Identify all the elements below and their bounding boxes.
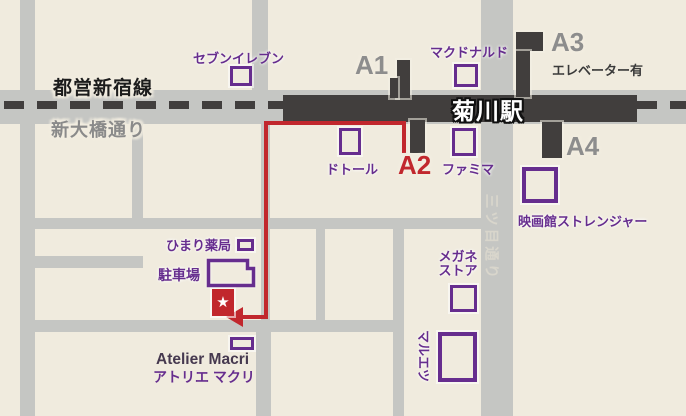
exit-a2-stub [410, 120, 425, 153]
destination-star-icon: ★ [212, 289, 234, 316]
exit-a3-stub-arm [516, 32, 543, 51]
exit-a3-stub [516, 51, 530, 97]
mcdonalds-marker [454, 64, 478, 87]
megane-store-marker [450, 285, 477, 312]
doutor-marker [339, 128, 361, 155]
exit-a1-stub-foot [390, 78, 398, 98]
maruetsu-label: マルエツ [420, 330, 434, 382]
exit-a3-label: A3 [551, 27, 584, 58]
toei-shinjuku-line-label: 都営新宿線 [53, 73, 153, 100]
parking-marker [203, 256, 257, 289]
street-horizontal-3 [20, 320, 404, 332]
exit-a1-label: A1 [355, 50, 388, 81]
exit-a1-stub [397, 60, 410, 98]
destination-name-ja: アトリエ マクリ [153, 367, 255, 387]
cinema-label: 映画館ストレンジャー [518, 211, 647, 230]
cinema-marker [522, 167, 558, 203]
atelier-macri-marker [230, 337, 254, 350]
famima-label: ファミマ [442, 159, 494, 178]
parking-label: 駐車場 [158, 265, 200, 285]
street-vertical-lower [256, 320, 271, 416]
station-label: 菊川駅 [452, 92, 524, 126]
megane-store-label-line1: メガネ [436, 250, 480, 264]
subway-dashed-line-right [637, 101, 686, 109]
street-horizontal-2 [20, 256, 143, 268]
street-vertical-left [20, 0, 35, 416]
access-map: ★ セブンイレブン マクドナルド ドトール ファミマ 映画館ストレンジャー メガ… [0, 0, 686, 416]
himari-pharmacy-label: ひまり薬局 [166, 235, 231, 254]
himari-pharmacy-marker [237, 239, 254, 251]
mitsume-dori-label: 三ツ目通り [488, 190, 503, 286]
seven-eleven-label: セブンイレブン [193, 48, 284, 67]
exit-a4-label: A4 [566, 131, 599, 162]
street-horizontal-1 [20, 218, 481, 229]
seven-eleven-marker [230, 66, 252, 86]
doutor-label: ドトール [326, 159, 378, 178]
star-glyph: ★ [216, 295, 229, 310]
shin-ohashi-dori-label: 新大橋通り [51, 116, 146, 142]
megane-store-label-line2: ストア [436, 264, 480, 278]
exit-a2-label: A2 [398, 150, 431, 181]
maruetsu-marker [438, 332, 477, 382]
street-vertical-mid-3 [393, 218, 404, 416]
mcdonalds-label: マクドナルド [430, 42, 508, 61]
street-vertical-mid-2 [316, 218, 325, 332]
exit-a4-stub [542, 122, 562, 158]
subway-dashed-line-left [4, 101, 283, 109]
famima-marker [452, 128, 476, 156]
street-vertical-route [261, 90, 270, 332]
exit-a3-elevator-note: エレベーター有 [552, 60, 643, 79]
megane-store-label: メガネ ストア [436, 250, 480, 278]
